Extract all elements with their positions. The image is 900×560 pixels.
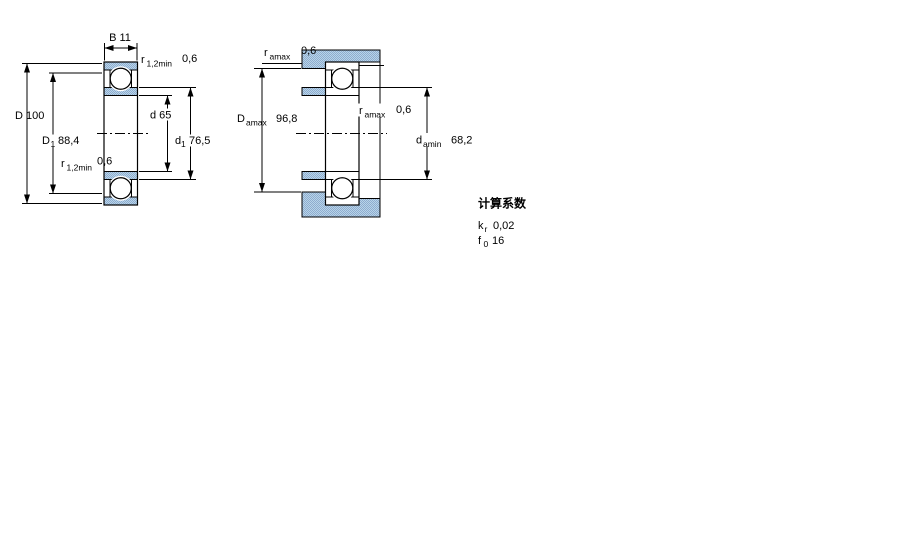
fillet-mid-symbol: r: [359, 105, 363, 117]
bore-label: d 65: [150, 110, 171, 122]
bearing-drawing-page: B 11 D 100 D 1 88,4 d 65 d 1 76,5 r 1,2m…: [0, 0, 900, 560]
shoulder-outer-subscript: 1: [51, 139, 56, 149]
chamfer-top-value: 0,6: [182, 53, 197, 65]
chamfer-mid-subscript: 1,2min: [67, 163, 93, 173]
chamfer-top-subscript: 1,2min: [147, 59, 173, 69]
shoulder-outer-symbol: D: [42, 135, 50, 147]
chamfer-mid-value: 0,6: [97, 156, 112, 168]
shoulder-inner-value: 76,5: [189, 135, 210, 147]
kr-value: 0,02: [493, 220, 514, 232]
f0-symbol: f: [478, 235, 482, 247]
f0-value: 16: [492, 235, 504, 247]
fillet-top-value: 0,6: [301, 45, 316, 57]
calculation-factors-title: 计算系数: [478, 196, 527, 211]
shoulder-outer-value: 88,4: [58, 135, 79, 147]
bearing-section-hatched: [97, 62, 151, 205]
chamfer-top-symbol: r: [141, 54, 145, 66]
fillet-top-subscript: amax: [270, 52, 292, 62]
mounting-view: r amax 0,6 D amax 96,8 r amax 0,6 d amin…: [237, 45, 480, 217]
kr-symbol: k: [478, 220, 484, 232]
ball-top: [110, 68, 131, 89]
housing-abutment-symbol: D: [237, 113, 245, 125]
ball-top: [332, 68, 353, 89]
fillet-top-symbol: r: [264, 47, 268, 59]
bearing-section-plain: [296, 62, 387, 205]
shaft-abutment-subscript: amin: [423, 139, 442, 149]
cross-section-view: B 11 D 100 D 1 88,4 d 65 d 1 76,5 r 1,2m…: [15, 32, 215, 205]
shaft-shoulder-top: [302, 88, 326, 96]
chamfer-mid-symbol: r: [61, 158, 65, 170]
housing-abutment-value: 96,8: [276, 113, 297, 125]
shaft-abutment-value: 68,2: [451, 135, 472, 147]
fillet-mid-value: 0,6: [396, 104, 411, 116]
width-label: B 11: [109, 32, 131, 44]
housing-abutment-subscript: amax: [246, 118, 268, 128]
ball-bottom: [110, 178, 131, 199]
f0-subscript: 0: [484, 239, 489, 249]
shaft-shoulder-bottom: [302, 172, 326, 180]
labels-front: B 11 D 100 D 1 88,4 d 65 d 1 76,5 r 1,2m…: [15, 32, 215, 173]
shoulder-inner-subscript: 1: [181, 139, 186, 149]
calculation-factors-block: 计算系数 k r 0,02 f 0 16: [478, 196, 527, 250]
fillet-mid-subscript: amax: [365, 110, 387, 120]
shaft-abutment-symbol: d: [416, 135, 422, 147]
outer-diameter-label: D 100: [15, 110, 44, 122]
ball-bottom: [332, 178, 353, 199]
bearing-technical-drawing: B 11 D 100 D 1 88,4 d 65 d 1 76,5 r 1,2m…: [0, 0, 900, 560]
kr-subscript: r: [485, 224, 488, 234]
